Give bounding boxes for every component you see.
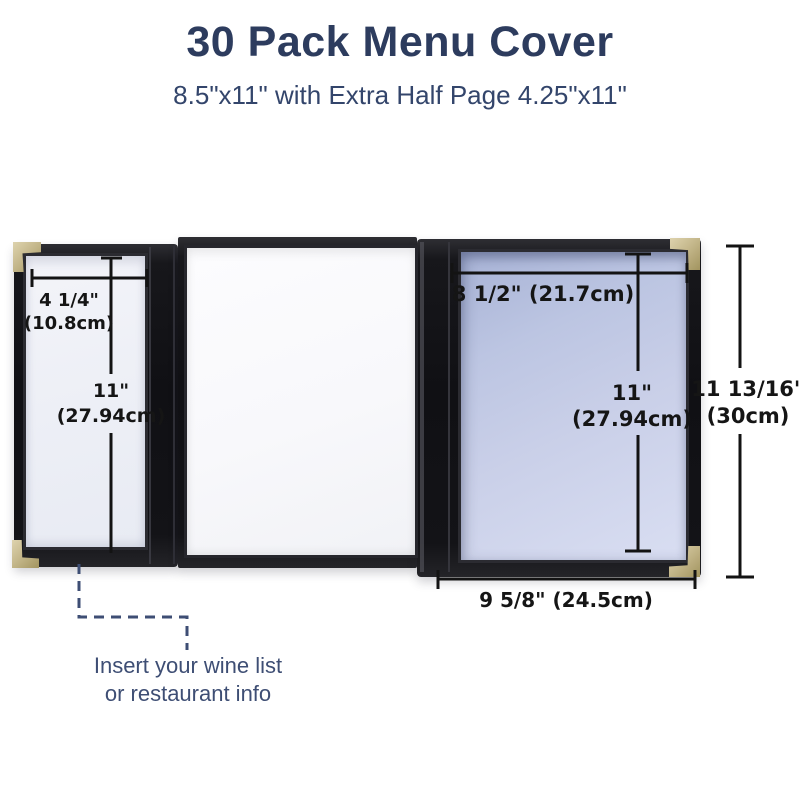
cover-height-label: 11 13/16" (30cm)	[678, 376, 800, 430]
callout-note: Insert your wine list or restaurant info	[83, 652, 293, 708]
product-dimension-image: 30 Pack Menu Cover 8.5"x11" with Extra H…	[0, 0, 800, 800]
half-page-height-label: 11" (27.94cm)	[41, 379, 181, 429]
full-page-width-label: 8 1/2" (21.7cm)	[433, 282, 653, 306]
cover-width-label: 9 5/8" (24.5cm)	[446, 588, 686, 612]
spine-stitch-line	[420, 242, 424, 572]
half-page-width-label: 4 1/4" (10.8cm)	[9, 289, 129, 335]
product-title: 30 Pack Menu Cover	[0, 18, 800, 66]
middle-page-insert	[187, 248, 415, 555]
callout-dashed-line	[79, 564, 187, 650]
product-subtitle: 8.5"x11" with Extra Half Page 4.25"x11"	[0, 80, 800, 110]
